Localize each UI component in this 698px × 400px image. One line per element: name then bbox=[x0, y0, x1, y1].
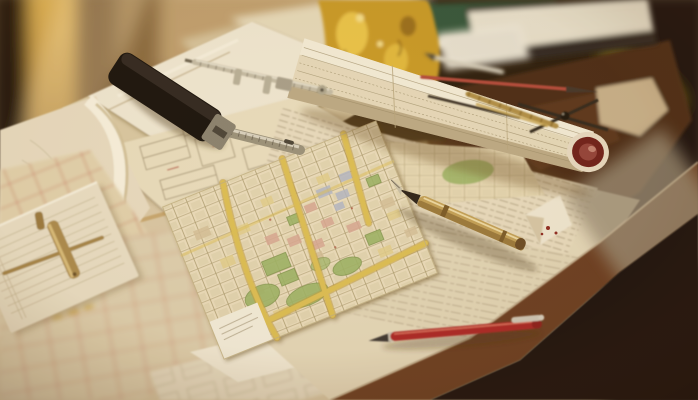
lighting-overlays bbox=[0, 0, 698, 400]
photo-canvas bbox=[0, 0, 698, 400]
desk-photo bbox=[0, 0, 698, 400]
warm-tone-wash bbox=[0, 0, 698, 400]
